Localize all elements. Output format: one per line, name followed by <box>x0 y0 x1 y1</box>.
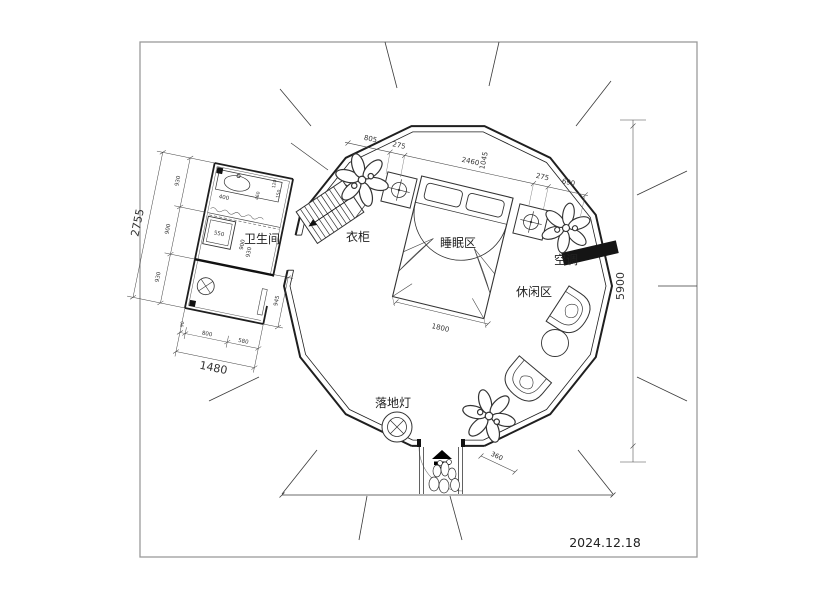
nightstand-left <box>381 172 417 208</box>
leisure-area-label: 休闲区 <box>516 285 552 299</box>
ac-label: 空调 <box>554 253 578 267</box>
wardrobe-label: 衣柜 <box>346 229 370 244</box>
corner-block <box>216 167 223 174</box>
floor-lamp-label: 落地灯 <box>375 396 411 410</box>
round-table <box>542 330 569 357</box>
date-stamp: 2024.12.18 <box>569 535 641 550</box>
floorplan-canvas: 930 900 930 2755 90 800 580 1480 945 550… <box>0 0 837 592</box>
floorplan-page: 930 900 930 2755 90 800 580 1480 945 550… <box>0 0 837 592</box>
corner-block <box>189 300 196 307</box>
sleeping-area-label: 睡眠区 <box>440 236 476 250</box>
floor-lamp <box>382 412 412 442</box>
dim-5900: 5900 <box>614 272 627 300</box>
bathroom-label: 卫生间 <box>244 232 280 246</box>
